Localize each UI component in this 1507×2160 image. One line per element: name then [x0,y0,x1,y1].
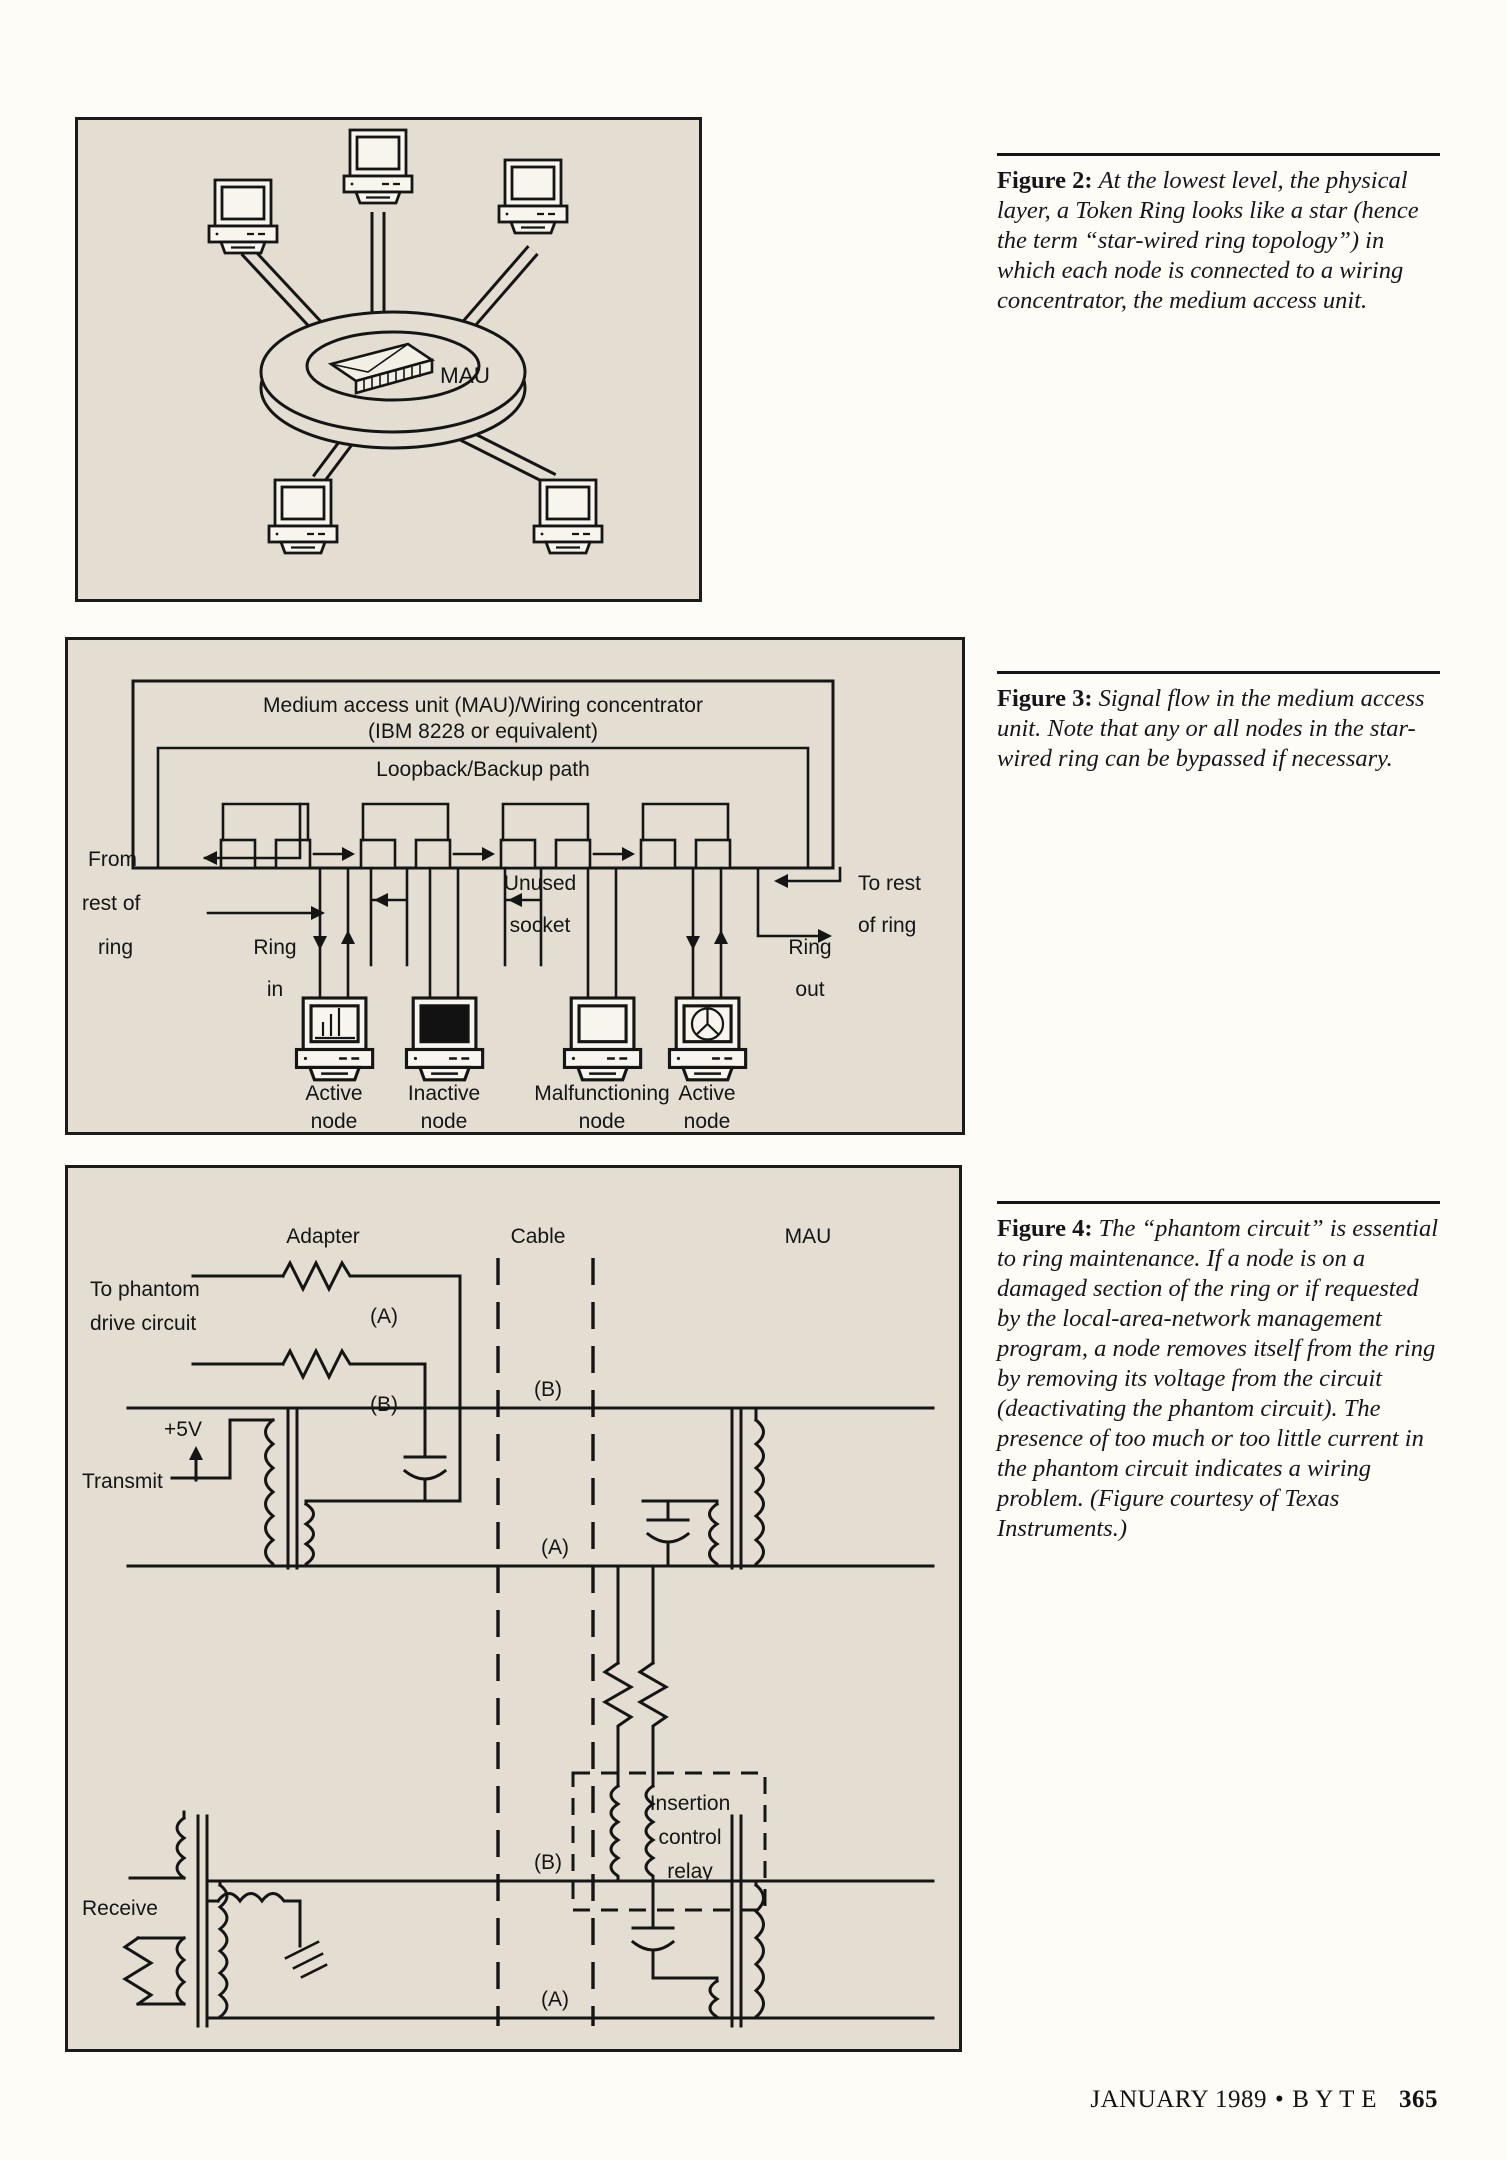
node-label: node [579,1110,626,1132]
figure3-caption-lead: Figure 3: [997,685,1093,712]
receive-b-bus-label: (B) [534,1851,562,1874]
figure3-mau-signal-flow-panel: Medium access unit (MAU)/Wiring concentr… [65,637,965,1135]
unused-socket-label-line1: Unused [504,872,576,895]
ring-out-wires [758,868,840,943]
receive-label: Receive [82,1897,158,1920]
footer-page-number: 365 [1399,2086,1438,2113]
node-label: Malfunctioning [534,1082,669,1105]
to-rest-label-line2: of ring [858,914,916,937]
wire-a-label: (A) [370,1305,398,1328]
adapter-column-label: Adapter [286,1225,360,1248]
to-rest-label-line1: To rest [858,872,921,895]
phantom-circuit-schematic: Adapter Cable MAU To phantom drive circu… [68,1168,959,2049]
phantom-drive-wires [193,1263,460,1501]
adapter-transmit-transformer [172,1411,460,1568]
transmit-a-bus-label: (A) [541,1536,569,1559]
transmit-b-bus-label: (B) [534,1378,562,1401]
relay-coils [611,1786,653,1928]
ring-in-label-line2: in [267,978,283,1001]
node-label: Active [305,1082,362,1105]
computer-icon [564,998,640,1080]
computer-icon [209,180,277,253]
relay-label-line1: Insertion [650,1792,731,1815]
figure2-star-topology-panel: MAU [75,117,702,602]
mau-label: MAU [440,363,490,388]
relay-capacitor [633,1928,717,1978]
transmit-label: Transmit [82,1470,163,1493]
unused-socket-label-line2: socket [510,914,571,937]
plus5v-arrow [189,1446,203,1460]
footer-bullet: • [1275,2086,1284,2113]
figure4-caption-lead: Figure 4: [997,1215,1093,1242]
to-phantom-label-line1: To phantom [90,1278,200,1301]
ring-in-label-line1: Ring [253,936,296,959]
plus5v-label: +5V [164,1418,202,1441]
phantom-resistor-pair [605,1566,666,1786]
footer-issue: JANUARY 1989 [1090,2086,1267,2113]
computer-icon [534,480,602,553]
figure4-caption-body: The “phantom circuit” is essential to ri… [997,1215,1438,1542]
mau-title-line1: Medium access unit (MAU)/Wiring concentr… [263,694,703,717]
figure4-caption: Figure 4: The “phantom circuit” is essen… [997,1201,1440,1544]
from-rest-label-line1: From [88,848,137,871]
figure2-caption-lead: Figure 2: [997,167,1093,194]
magazine-page: MAU Figure 2: At the lowest level, the p… [0,0,1507,2160]
figure4-phantom-circuit-panel: Adapter Cable MAU To phantom drive circu… [65,1165,962,2052]
mau-signal-flow-diagram: Medium access unit (MAU)/Wiring concentr… [68,640,962,1132]
cable-column-label: Cable [511,1225,566,1248]
black-screen [421,1006,468,1042]
figure2-caption: Figure 2: At the lowest level, the physi… [997,153,1440,316]
star-topology-diagram: MAU [78,120,699,599]
from-rest-label-line2: rest of [82,892,141,915]
computer-icon [499,160,567,233]
node-label: node [311,1110,358,1132]
to-phantom-label-line2: drive circuit [90,1312,196,1335]
mau-transmit-transformer [643,1408,764,1568]
mau-column-label: MAU [785,1225,832,1248]
mau-title-line2: (IBM 8228 or equivalent) [368,720,598,743]
node-label: node [421,1110,468,1132]
wire-b-label: (B) [370,1393,398,1416]
ring-out-label-line2: out [795,978,824,1001]
ring-out-label-line1: Ring [788,936,831,959]
node-label: Inactive [408,1082,480,1105]
relay-label-line2: control [658,1826,721,1849]
computer-icon [344,130,412,203]
from-rest-label-line3: ring [98,936,133,959]
node-label: Active [678,1082,735,1105]
page-footer: JANUARY 1989•B Y T E365 [1090,2086,1438,2114]
figure3-caption: Figure 3: Signal flow in the medium acce… [997,671,1440,774]
adapter-transmit-capacitor [405,1457,445,1501]
loopback-label: Loopback/Backup path [376,758,590,781]
receive-a-bus-label: (A) [541,1988,569,2011]
node-label: node [684,1110,731,1132]
footer-magazine: B Y T E [1292,2086,1377,2113]
computer-icon [269,480,337,553]
